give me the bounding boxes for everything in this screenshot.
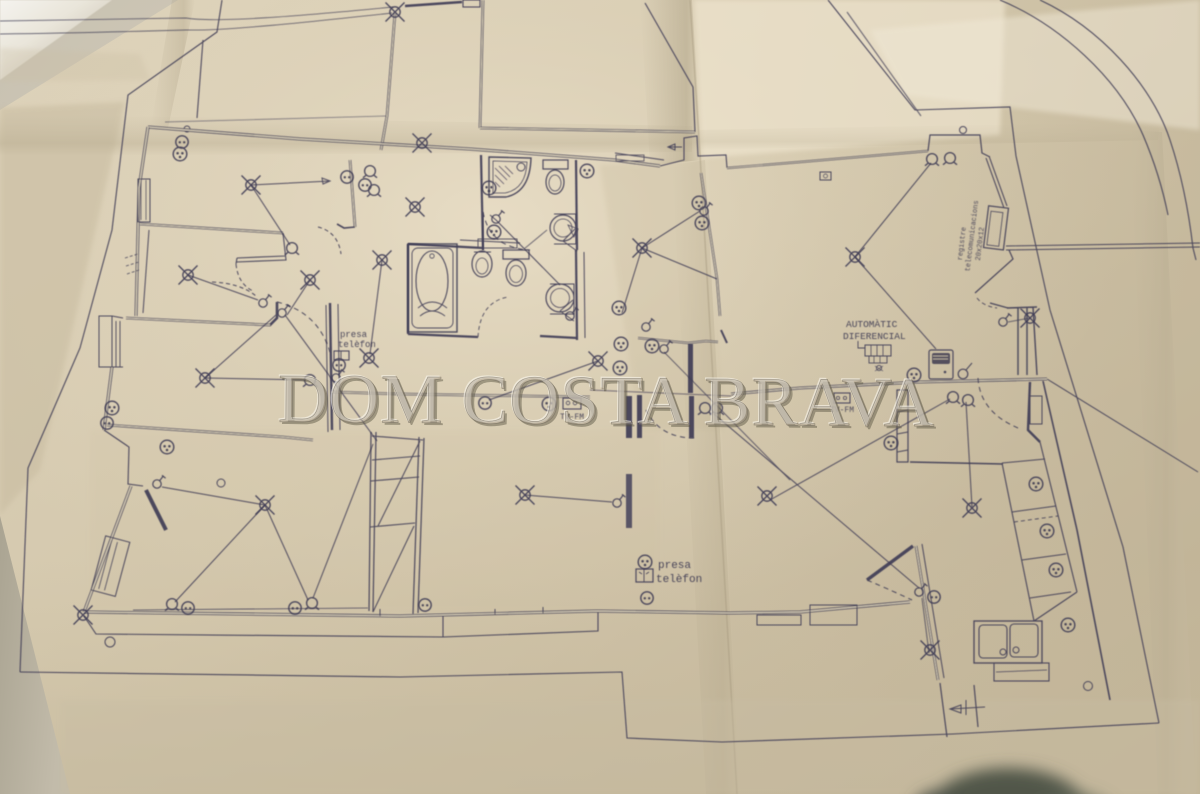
svg-text:AUTOMÀTIC: AUTOMÀTIC: [846, 319, 898, 330]
svg-text:presa: presa: [658, 560, 691, 572]
svg-text:DOM COSTA BRAVA: DOM COSTA BRAVA: [278, 361, 936, 443]
svg-text:telèfon: telèfon: [338, 340, 376, 350]
svg-text:telèfon: telèfon: [656, 574, 702, 586]
svg-text:DIFERENCIAL: DIFERENCIAL: [843, 331, 906, 342]
svg-text:presa: presa: [340, 330, 368, 340]
